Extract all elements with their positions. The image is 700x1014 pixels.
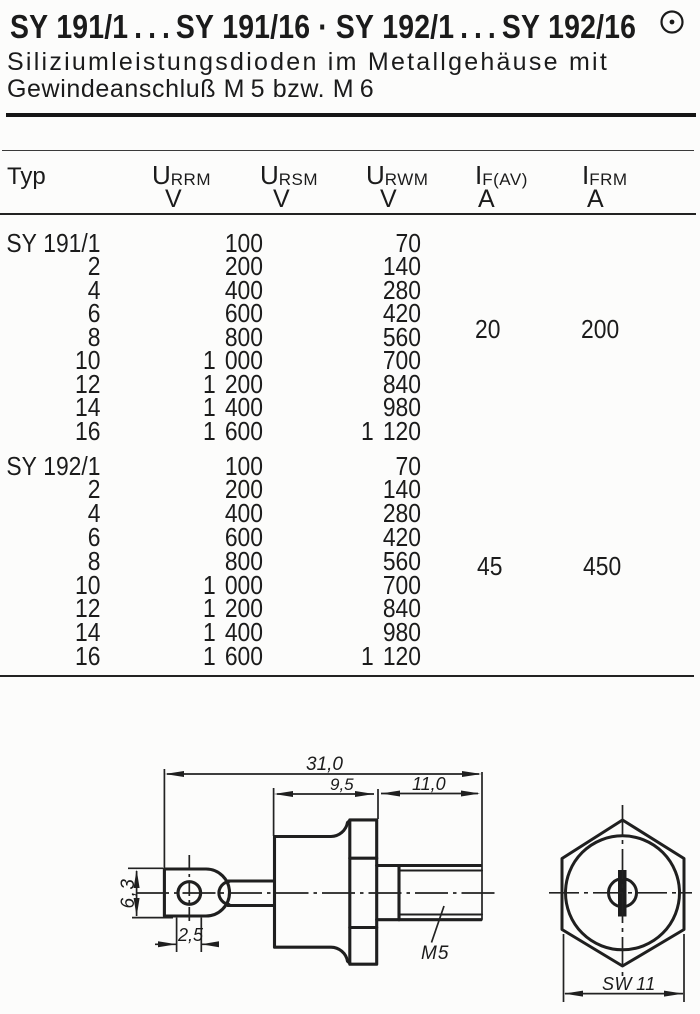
svg-text:31,0: 31,0	[306, 754, 343, 775]
svg-text:11,0: 11,0	[412, 774, 446, 794]
svg-text:2,5: 2,5	[177, 925, 204, 945]
svg-text:SW 11: SW 11	[602, 974, 656, 994]
svg-text:9,5: 9,5	[330, 775, 354, 794]
svg-text:6,3: 6,3	[118, 878, 139, 909]
svg-text:M5: M5	[421, 943, 449, 964]
